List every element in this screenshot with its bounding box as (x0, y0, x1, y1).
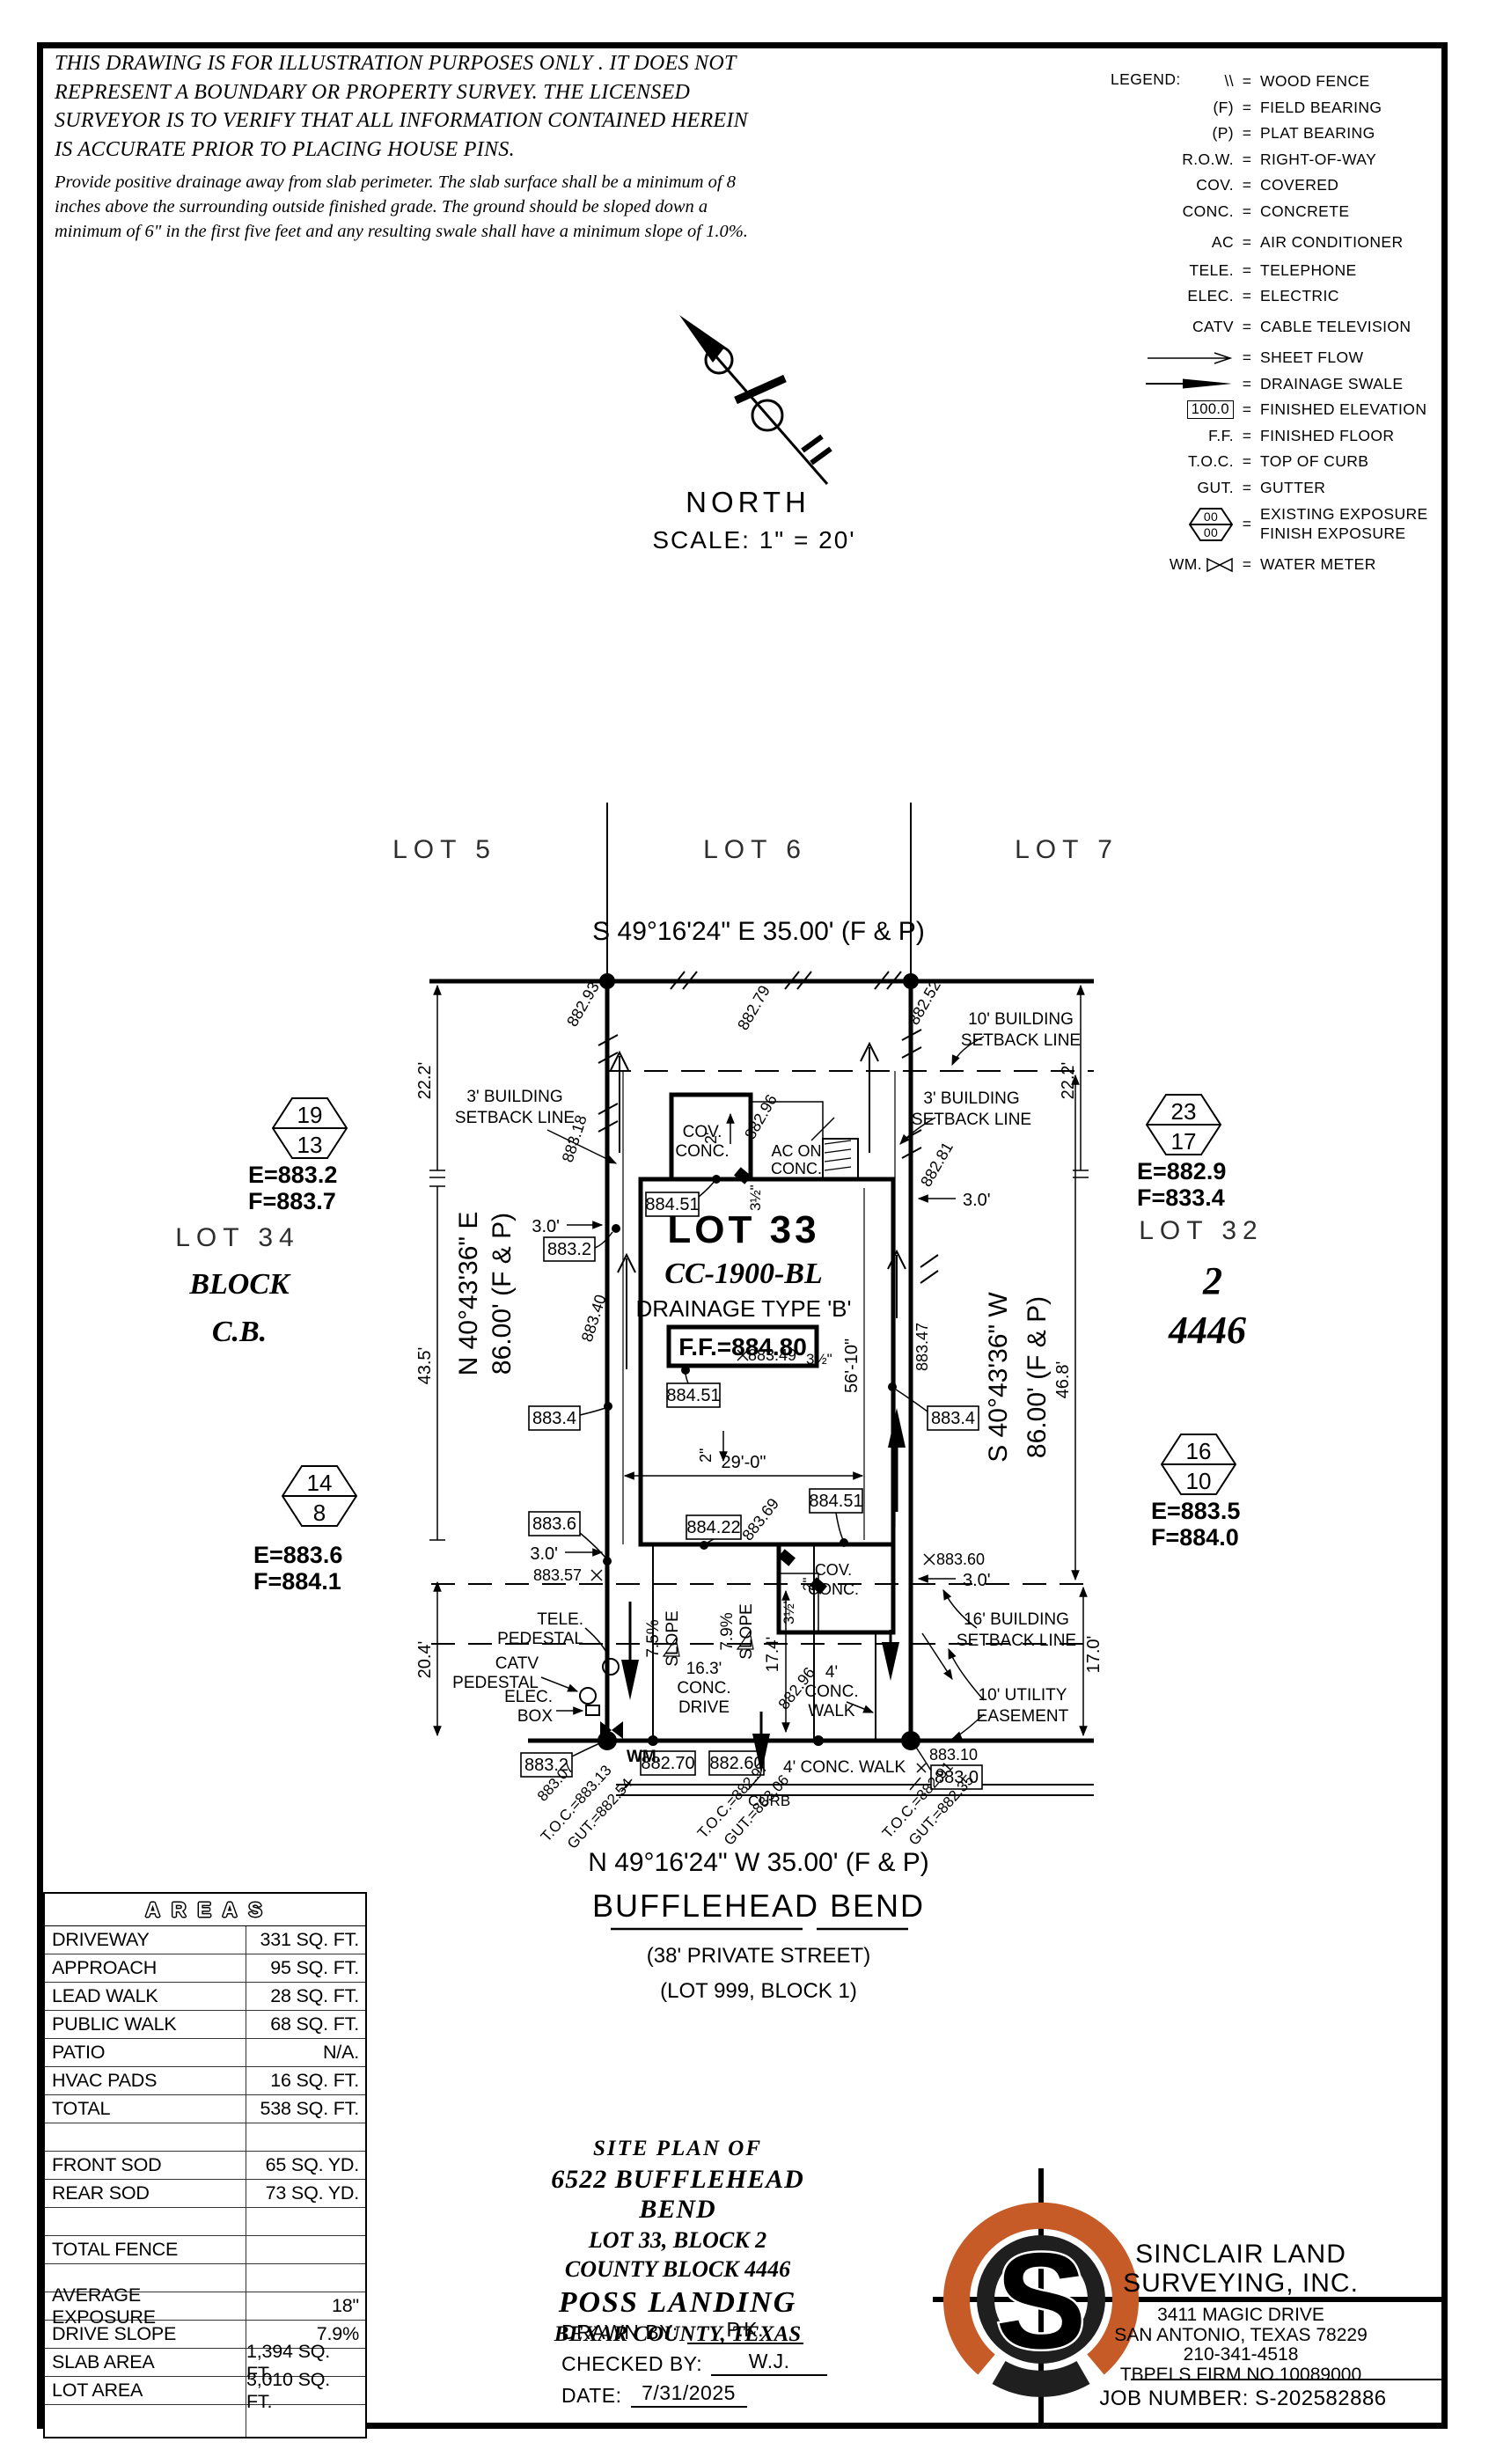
elec-box-label-2: BOX (517, 1707, 553, 1726)
legend-row-row: R.O.W. = RIGHT-OF-WAY (1111, 150, 1458, 169)
drive-label-2: CONC. (677, 1679, 730, 1698)
row-label: AVERAGE EXPOSURE (45, 2292, 246, 2320)
spot-882-96-rear: 882.96 (741, 1091, 781, 1142)
wm-label: WM. (627, 1748, 661, 1766)
ff-abbr: F.F. (1111, 427, 1237, 445)
hex-e-value: E=883.2 (248, 1162, 337, 1188)
plat-drawing: LOT 5 LOT 6 LOT 7 S 49°16'24" E 35.00' (… (132, 774, 1364, 2033)
row-label: DRIVEWAY (45, 1926, 246, 1954)
sheet-flow-icon (1111, 352, 1237, 364)
drawn-by-row: DRAWN BY: P.K. (561, 2318, 852, 2344)
slope-75-value: 7.5% (644, 1619, 663, 1657)
legend-row-concrete: CONC. = CONCRETE (1111, 202, 1458, 221)
box-884-22: 884.22 (686, 1518, 740, 1537)
disclaimer-notes: THIS DRAWING IS FOR ILLUSTRATION PURPOSE… (55, 49, 750, 244)
table-row: HVAC PADS16 SQ. FT. (45, 2067, 365, 2095)
date-value: 7/31/2025 (631, 2381, 747, 2408)
ac-label-1: AC ON (771, 1142, 821, 1160)
illustration-disclaimer: THIS DRAWING IS FOR ILLUSTRATION PURPOSE… (55, 49, 750, 165)
equals-sign: = (1237, 202, 1257, 221)
ac-abbr: AC (1111, 233, 1237, 252)
setback3-right-label-1: 3' BUILDING (923, 1089, 1019, 1108)
table-row: LEAD WALK28 SQ. FT. (45, 1983, 365, 2011)
spot-883-49: 883.49 (748, 1346, 796, 1364)
front-porch-cov: COV. (815, 1561, 852, 1579)
legend-label: CONCRETE (1257, 202, 1349, 221)
equals-sign: = (1237, 479, 1257, 497)
dim-17-4: 17.4' (764, 1637, 782, 1673)
hex-finish: 8 (313, 1500, 326, 1526)
exposure-hex-bottomright: 16 10 E=883.5 F=884.0 (1151, 1434, 1240, 1551)
legend-label: CABLE TELEVISION (1257, 318, 1411, 336)
legend-label: PLAT BEARING (1257, 124, 1375, 143)
dim-22-2-left: 22.2' (415, 1062, 435, 1100)
row-value: 68 SQ. FT. (246, 2011, 365, 2038)
title-line-2: 6522 BUFFLEHEAD BEND (510, 2165, 845, 2225)
equals-sign: = (1237, 515, 1257, 533)
legend-label: ELECTRIC (1257, 287, 1339, 305)
walk-label-3: WALK (808, 1702, 854, 1720)
hex-f-value: F=883.7 (248, 1188, 336, 1214)
wm-abbr: WM. (1170, 555, 1202, 574)
street-name: BUFFLEHEAD BEND (592, 1888, 925, 1924)
row-value: 73 SQ. YD. (246, 2180, 365, 2207)
logo-letter-s: S (995, 2225, 1086, 2377)
box-883-4-left: 883.4 (532, 1409, 576, 1428)
table-row: FRONT SOD65 SQ. YD. (45, 2152, 365, 2180)
dim-3-0-right-lower: 3.0' (963, 1571, 991, 1590)
catv-abbr: CATV (1111, 318, 1237, 336)
exposure-hex-bottomleft: 14 8 E=883.6 F=884.1 (253, 1466, 356, 1595)
bearing-right-2: 86.00' (F & P) (1023, 1296, 1052, 1458)
hex-finish: 13 (297, 1132, 323, 1158)
job-number: JOB NUMBER: S-202582886 (1091, 2387, 1395, 2411)
legend-label: GUTTER (1257, 479, 1325, 497)
spot-883-40: 883.40 (578, 1293, 610, 1345)
dim-3half-porch: 3½" (781, 1598, 797, 1624)
utility-easement-label-2: EASEMENT (977, 1707, 1069, 1726)
checked-by-row: CHECKED BY: W.J. (561, 2350, 852, 2376)
hex-f-value: F=884.1 (253, 1568, 341, 1595)
dim-56-10: 56'-10" (842, 1338, 862, 1393)
dim-3half-center: 3½" (806, 1351, 832, 1368)
row-value: 3,010 SQ. FT. (246, 2377, 365, 2404)
lot6-label: LOT 6 (703, 835, 807, 864)
areas-header: AREAS (45, 1894, 365, 1926)
legend-label: FINISH EXPOSURE (1260, 524, 1428, 544)
legend-label-2line: EXISTING EXPOSURE FINISH EXPOSURE (1257, 505, 1428, 544)
equals-sign: = (1237, 287, 1257, 305)
exposure-hex-topleft: 19 13 E=883.2 F=883.7 (248, 1098, 347, 1214)
row-label: REAR SOD (45, 2180, 246, 2207)
legend-label: FINISHED ELEVATION (1257, 400, 1426, 419)
table-row (45, 2405, 365, 2437)
row-label: TOTAL (45, 2095, 246, 2123)
hex-finish: 10 (1186, 1468, 1212, 1494)
legend-row-catv: CATV = CABLE TELEVISION (1111, 318, 1458, 337)
bearing-bottom: N 49°16'24" W 35.00' (F & P) (588, 1848, 929, 1877)
legend-row-ac: AC = AIR CONDITIONER (1111, 232, 1458, 252)
elec-box-label-1: ELEC. (504, 1688, 553, 1706)
row-abbr: R.O.W. (1111, 150, 1237, 169)
lot7-label: LOT 7 (1015, 835, 1118, 864)
legend-label: WATER METER (1257, 555, 1376, 574)
areas-table: AREAS DRIVEWAY331 SQ. FT. APPROACH95 SQ.… (43, 1892, 367, 2438)
row-value: 331 SQ. FT. (246, 1926, 365, 1954)
surveyor-city: SAN ANTONIO, TEXAS 78229 (1096, 2326, 1386, 2346)
legend-label: AIR CONDITIONER (1257, 233, 1404, 252)
setback3-right-label-2: SETBACK LINE (912, 1111, 1031, 1129)
box-884-51-b: 884.51 (666, 1386, 720, 1405)
block-number: 2 (1202, 1259, 1222, 1302)
legend-label: FINISHED FLOOR (1257, 427, 1394, 445)
exposure-hex-topright: 23 17 E=882.9 F=833.4 (1137, 1095, 1226, 1211)
lot32-label: LOT 32 (1139, 1216, 1264, 1245)
elec-abbr: ELEC. (1111, 287, 1237, 305)
legend-row-finished-elevation: 100.0 = FINISHED ELEVATION (1111, 400, 1458, 420)
dim-17-0: 17.0' (1084, 1636, 1104, 1674)
legend-label: RIGHT-OF-WAY (1257, 150, 1376, 169)
row-value (246, 2405, 365, 2437)
equals-sign: = (1237, 124, 1257, 143)
table-row: REAR SOD73 SQ. YD. (45, 2180, 365, 2208)
spot-883-60: 883.60 (936, 1551, 985, 1568)
walk-label-2: CONC. (804, 1683, 858, 1701)
legend-row-water-meter: WM. = WATER METER (1111, 555, 1458, 575)
legend-row-elec: ELEC. = ELECTRIC (1111, 287, 1458, 306)
row-label (45, 2405, 246, 2437)
row-label: TOTAL FENCE (45, 2236, 246, 2263)
checked-by-value: W.J. (711, 2350, 827, 2376)
title-line-4: COUNTY BLOCK 4446 (510, 2256, 845, 2283)
drawn-by-label: DRAWN BY: (561, 2321, 678, 2344)
table-row: DRIVEWAY331 SQ. FT. (45, 1926, 365, 1954)
legend-label: TOP OF CURB (1257, 452, 1368, 471)
legend-row-gutter: GUT. = GUTTER (1111, 478, 1458, 497)
exposure-hexagon-icon: 00 00 (1111, 506, 1237, 543)
setback3-left-label-2: SETBACK LINE (455, 1109, 575, 1127)
tele-pedestal-label-1: TELE. (537, 1610, 583, 1629)
bearing-top: S 49°16'24" E 35.00' (F & P) (592, 917, 925, 946)
title-line-3: LOT 33, BLOCK 2 (510, 2227, 845, 2254)
dim-3-0-left-lower: 3.0' (530, 1544, 558, 1564)
legend-row-plat-bearing: (P) = PLAT BEARING (1111, 124, 1458, 143)
table-row: TOTAL538 SQ. FT. (45, 2095, 365, 2123)
row-value (246, 2208, 365, 2235)
setback16-label-1: 16' BUILDING (964, 1610, 1069, 1629)
equals-sign: = (1237, 150, 1257, 169)
spot-882-81: 882.81 (917, 1139, 957, 1190)
slope-79-value: 7.9% (718, 1612, 737, 1650)
row-label: HVAC PADS (45, 2067, 246, 2094)
row-label: SLAB AREA (45, 2349, 246, 2376)
legend-row-field-bearing: (F) = FIELD BEARING (1111, 98, 1458, 117)
table-row: APPROACH95 SQ. FT. (45, 1954, 365, 1983)
box-883-6: 883.6 (532, 1514, 576, 1534)
dim-3-0-right-upper: 3.0' (963, 1191, 991, 1210)
hex-e-value: E=882.9 (1137, 1158, 1226, 1184)
dim-46-8: 46.8' (1053, 1361, 1073, 1399)
concrete-abbr: CONC. (1111, 202, 1237, 221)
row-value: 95 SQ. FT. (246, 1954, 365, 1982)
legend-label: COVERED (1257, 176, 1338, 194)
dim-2in-porch: 2" (800, 1578, 817, 1592)
tele-pedestal-label-2: PEDESTAL (497, 1630, 583, 1648)
cb-label: C.B. (212, 1316, 267, 1348)
row-value: 65 SQ. YD. (246, 2152, 365, 2179)
lot5-label: LOT 5 (392, 835, 496, 864)
legend-label: EXISTING EXPOSURE (1260, 505, 1428, 524)
equals-sign: = (1237, 261, 1257, 280)
tele-abbr: TELE. (1111, 261, 1237, 280)
row-value: 538 SQ. FT. (246, 2095, 365, 2123)
equals-sign: = (1237, 400, 1257, 419)
dim-2in-mid: 2" (697, 1448, 715, 1463)
legend-row-ff: F.F. = FINISHED FLOOR (1111, 426, 1458, 445)
drawn-checked-date-block: DRAWN BY: P.K. CHECKED BY: W.J. DATE: 7/… (561, 2313, 852, 2408)
surveyor-street: 3411 MAGIC DRIVE (1096, 2306, 1386, 2326)
table-row (45, 2123, 365, 2152)
street-note-1: (38' PRIVATE STREET) (647, 1944, 870, 1968)
row-value (246, 2123, 365, 2151)
legend-row-toc: T.O.C. = TOP OF CURB (1111, 452, 1458, 472)
table-row: LOT AREA3,010 SQ. FT. (45, 2377, 365, 2405)
row-label: LEAD WALK (45, 1983, 246, 2010)
row-label (45, 2123, 246, 2151)
dim-29-0: 29'-0" (722, 1453, 766, 1472)
dim-20-4: 20.4' (415, 1641, 435, 1679)
surveyor-firm-number: TBPELS FIRM NO.10089000 (1096, 2365, 1386, 2386)
box-883-4-right: 883.4 (931, 1409, 975, 1428)
legend-row-sheet-flow: = SHEET FLOW (1111, 348, 1458, 368)
hex-f-value: F=884.0 (1151, 1524, 1239, 1551)
spot-882-79: 882.79 (734, 982, 774, 1033)
equals-sign: = (1237, 375, 1257, 393)
hex-f-value: F=833.4 (1137, 1184, 1225, 1211)
title-line-1: SITE PLAN OF (510, 2137, 845, 2161)
bearing-left-2: 86.00' (F & P) (488, 1213, 517, 1375)
table-row: AVERAGE EXPOSURE18" (45, 2292, 365, 2321)
rear-porch-conc: CONC. (675, 1142, 729, 1161)
legend-title: LEGEND: (1111, 70, 1181, 89)
slope-79-word: SLOPE (737, 1603, 756, 1659)
table-row (45, 2208, 365, 2236)
drainage-note: Provide positive drainage away from slab… (55, 170, 750, 245)
walk-bottom-label: 4' CONC. WALK (783, 1758, 906, 1777)
drawn-by-value: P.K. (687, 2318, 803, 2344)
row-label: PUBLIC WALK (45, 2011, 246, 2038)
checked-by-label: CHECKED BY: (561, 2352, 702, 2376)
surveyor-name: SINCLAIR LAND SURVEYING, INC. (1096, 2240, 1386, 2298)
row-label: LOT AREA (45, 2377, 246, 2404)
equals-sign: = (1237, 176, 1257, 194)
dim-22-2-right: 22.2' (1059, 1062, 1078, 1100)
north-arrow-head (679, 315, 725, 363)
catv-pedestal-label-1: CATV (495, 1654, 539, 1673)
drainage-swale-arrows (621, 1408, 952, 1774)
dim-3half-top: 3½" (747, 1184, 764, 1211)
table-row: TOTAL FENCE (45, 2236, 365, 2264)
hex-existing: 14 (307, 1470, 333, 1496)
row-value: 18" (246, 2292, 365, 2320)
block-label: BLOCK (188, 1268, 291, 1301)
gutter-abbr: GUT. (1111, 479, 1237, 497)
slope-75-word: SLOPE (664, 1610, 682, 1666)
row-value: 28 SQ. FT. (246, 1983, 365, 2010)
legend-label: DRAINAGE SWALE (1257, 375, 1404, 393)
row-value (246, 2264, 365, 2292)
legend-label: SHEET FLOW (1257, 348, 1363, 367)
finish-exposure-value: 00 (1204, 525, 1218, 539)
drainage-swale-icon (1111, 378, 1237, 390)
row-value: N/A. (246, 2039, 365, 2066)
legend-row-exposure: 00 00 = EXISTING EXPOSURE FINISH EXPOSUR… (1111, 504, 1458, 545)
hex-finish: 17 (1171, 1128, 1197, 1155)
spot-882-93: 882.93 (563, 979, 603, 1030)
equals-sign: = (1237, 452, 1257, 471)
box-884-51-c: 884.51 (809, 1492, 862, 1511)
surveyor-phone: 210-341-4518 (1096, 2345, 1386, 2365)
hex-existing: 23 (1171, 1098, 1197, 1125)
site-plan-sheet: THIS DRAWING IS FOR ILLUSTRATION PURPOSE… (0, 0, 1496, 2464)
hex-e-value: E=883.5 (1151, 1498, 1240, 1524)
legend-row-drainage-swale: = DRAINAGE SWALE (1111, 374, 1458, 393)
equals-sign: = (1237, 427, 1257, 445)
street-note-2: (LOT 999, BLOCK 1) (660, 1979, 857, 2003)
equals-sign: = (1237, 99, 1257, 117)
house-plan-label: CC-1900-BL (664, 1258, 822, 1290)
table-row: PUBLIC WALK68 SQ. FT. (45, 2011, 365, 2039)
existing-exposure-value: 00 (1204, 510, 1218, 524)
surveyor-name-line-2: SURVEYING, INC. (1096, 2269, 1386, 2298)
drive-label-1: 16.3' (686, 1660, 722, 1678)
equals-sign: = (1237, 72, 1257, 91)
north-label: NORTH (678, 486, 818, 519)
legend-label: WOOD FENCE (1257, 72, 1370, 91)
legend-label: FIELD BEARING (1257, 99, 1382, 117)
curb-lines (616, 1778, 1094, 1795)
legend-row-tele: TELE. = TELEPHONE (1111, 260, 1458, 280)
date-row: DATE: 7/31/2025 (561, 2381, 852, 2408)
hex-existing: 16 (1186, 1438, 1212, 1464)
neighbor-lot-lines (607, 803, 911, 981)
water-meter-icon: WM. (1111, 555, 1237, 574)
legend: LEGEND: \\ = WOOD FENCE (F) = FIELD BEAR… (1111, 65, 1458, 575)
spot-883-47: 883.47 (913, 1323, 931, 1371)
dim-43-5: 43.5' (415, 1347, 435, 1385)
scale-label: SCALE: 1" = 20' (627, 526, 882, 554)
spot-883-10: 883.10 (929, 1746, 978, 1764)
setback3-left-label-1: 3' BUILDING (466, 1088, 562, 1106)
equals-sign: = (1237, 318, 1257, 336)
surveyor-name-line-1: SINCLAIR LAND (1096, 2240, 1386, 2269)
bearing-left-1: N 40°43'36" E (454, 1212, 483, 1376)
utility-easement-label-1: 10' UTILITY (979, 1686, 1067, 1705)
row-label: DRIVE SLOPE (45, 2321, 246, 2348)
covered-abbr: COV. (1111, 176, 1237, 194)
plat-bearing-abbr: (P) (1111, 124, 1237, 143)
finished-elevation-box-icon: 100.0 (1111, 400, 1237, 419)
field-bearing-abbr: (F) (1111, 99, 1237, 117)
hex-existing: 19 (297, 1102, 323, 1128)
equals-sign: = (1237, 233, 1257, 252)
bearing-right-1: S 40°43'36" W (984, 1292, 1013, 1463)
walk-label-1: 4' (825, 1663, 838, 1682)
row-label (45, 2208, 246, 2235)
legend-label: TELEPHONE (1257, 261, 1357, 280)
setback10-label-2: SETBACK LINE (961, 1031, 1081, 1050)
hex-e-value: E=883.6 (253, 1542, 342, 1568)
dim-2ft-rear-porch: 2' (702, 1133, 720, 1144)
row-label: PATIO (45, 2039, 246, 2066)
row-value: 16 SQ. FT. (246, 2067, 365, 2094)
county-block-number: 4446 (1168, 1309, 1246, 1352)
spot-883-57: 883.57 (533, 1566, 582, 1584)
equals-sign: = (1237, 348, 1257, 367)
legend-row-covered: COV. = COVERED (1111, 176, 1458, 195)
setback16-label-2: SETBACK LINE (957, 1632, 1076, 1650)
elevation-box-value: 100.0 (1187, 400, 1234, 419)
spot-883-69: 883.69 (738, 1495, 782, 1544)
table-row: PATION/A. (45, 2039, 365, 2067)
box-883-2-left: 883.2 (547, 1240, 591, 1259)
row-label: APPROACH (45, 1954, 246, 1982)
row-value (246, 2236, 365, 2263)
drive-label-3: DRIVE (678, 1698, 730, 1717)
date-label: DATE: (561, 2384, 622, 2408)
ac-label-2: CONC. (771, 1160, 822, 1177)
surveyor-address: 3411 MAGIC DRIVE SAN ANTONIO, TEXAS 7822… (1096, 2306, 1386, 2385)
lot34-label: LOT 34 (175, 1223, 300, 1252)
setback10-label-1: 10' BUILDING (968, 1010, 1074, 1029)
house-drainage-label: DRAINAGE TYPE 'B' (636, 1295, 852, 1322)
equals-sign: = (1237, 555, 1257, 574)
row-label: FRONT SOD (45, 2152, 246, 2179)
dim-3-0-left-upper: 3.0' (532, 1217, 560, 1236)
toc-abbr: T.O.C. (1111, 452, 1237, 471)
box-884-51-a: 884.51 (645, 1195, 699, 1214)
